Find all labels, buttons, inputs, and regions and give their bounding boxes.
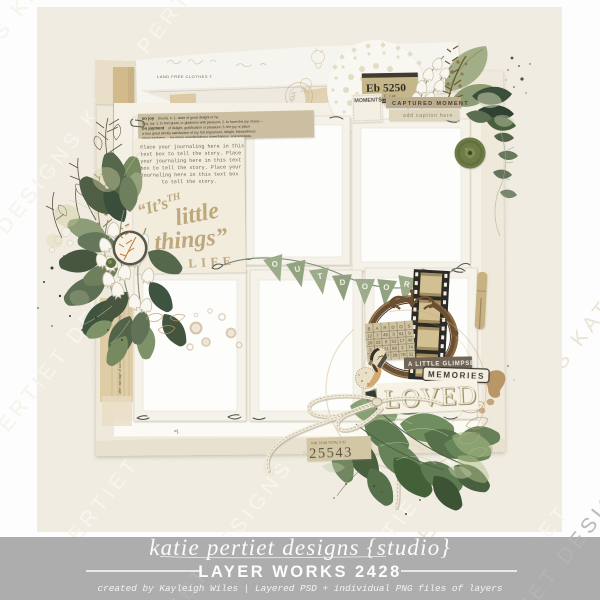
svg-text:A: A	[375, 326, 378, 331]
svg-text:12: 12	[367, 333, 373, 338]
svg-text:D: D	[339, 278, 346, 287]
svg-text:R: R	[383, 325, 387, 330]
svg-text:to tell the story.: to tell the story.	[162, 179, 217, 186]
svg-text:O: O	[362, 282, 368, 291]
svg-text:45: 45	[383, 332, 389, 337]
svg-text:on joy: on joy	[142, 115, 155, 120]
svg-text:70: 70	[400, 352, 406, 357]
svg-text:33: 33	[375, 340, 381, 345]
svg-text:LAYER WORKS 2428: LAYER WORKS 2428	[198, 563, 402, 581]
svg-text:40: 40	[407, 337, 413, 342]
svg-text:66: 66	[392, 345, 398, 350]
svg-text:O: O	[383, 283, 390, 293]
svg-text:26: 26	[392, 352, 398, 357]
svg-text:LAND FREE CLOTHES T: LAND FREE CLOTHES T	[157, 74, 212, 79]
svg-text:katie pertiet designs {studio}: katie pertiet designs {studio}	[149, 535, 451, 560]
svg-text:add caption here: add caption here	[403, 113, 453, 119]
svg-text:B: B	[367, 326, 370, 331]
svg-text:=|.: =|.	[174, 429, 180, 435]
svg-text:D: D	[391, 325, 395, 330]
svg-text:created by Kayleigh Wiles | La: created by Kayleigh Wiles | Layered PSD …	[97, 583, 502, 594]
svg-text:CAPTURED MOMENT: CAPTURED MOMENT	[392, 101, 469, 107]
svg-text:17: 17	[399, 338, 405, 343]
svg-text:61: 61	[399, 331, 405, 336]
svg-text:MOMENTS: MOMENTS	[354, 97, 382, 104]
svg-text:A LITTLE GLIMPSE: A LITTLE GLIMPSE	[408, 361, 475, 368]
svg-text:26: 26	[301, 88, 307, 94]
svg-text:52: 52	[391, 339, 397, 344]
svg-text:25543: 25543	[309, 445, 353, 463]
svg-text:on joyment: on joyment	[142, 125, 165, 130]
svg-text:S: S	[407, 324, 410, 329]
svg-text:74: 74	[408, 344, 414, 349]
svg-text:28: 28	[367, 340, 373, 345]
